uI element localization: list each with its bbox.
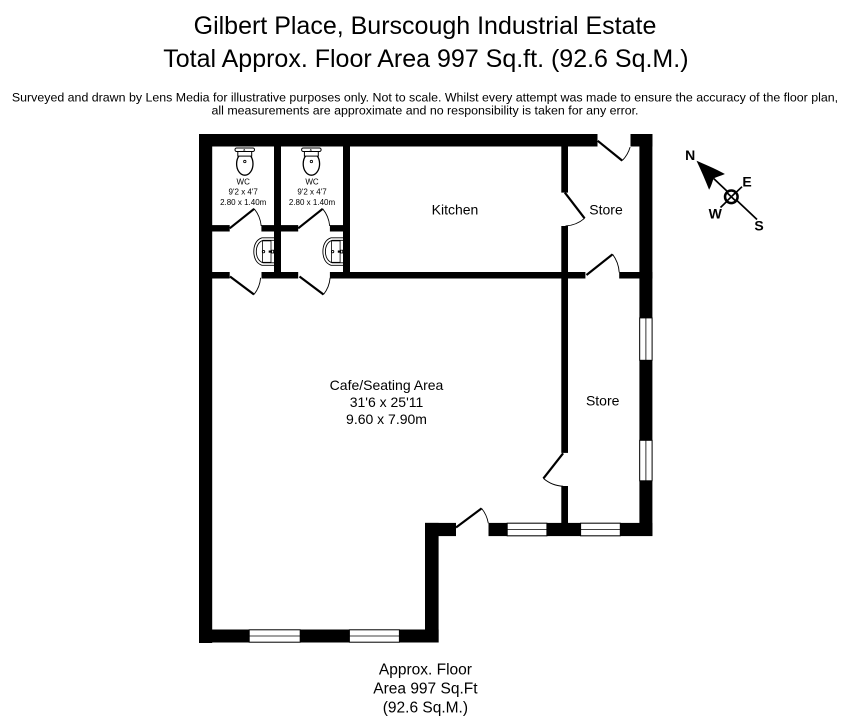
- svg-text:Kitchen: Kitchen: [432, 202, 479, 218]
- svg-text:2.80 x 1.40m: 2.80 x 1.40m: [289, 198, 336, 207]
- svg-text:E: E: [742, 174, 751, 190]
- svg-text:WC: WC: [237, 178, 251, 187]
- svg-text:Approx. Floor: Approx. Floor: [379, 662, 472, 679]
- svg-text:9'2 x 4'7: 9'2 x 4'7: [297, 188, 327, 197]
- svg-text:Gilbert Place, Burscough Indus: Gilbert Place, Burscough Industrial Esta…: [194, 12, 657, 40]
- svg-text:Cafe/Seating Area: Cafe/Seating Area: [330, 377, 444, 393]
- svg-text:WC: WC: [305, 178, 319, 187]
- svg-text:31'6 x 25'11: 31'6 x 25'11: [350, 394, 424, 410]
- svg-text:all measurements are approxima: all measurements are approximate and no …: [212, 103, 639, 117]
- svg-text:Store: Store: [586, 392, 620, 408]
- svg-text:Area 997 Sq.Ft: Area 997 Sq.Ft: [373, 681, 478, 698]
- svg-text:S: S: [754, 217, 763, 233]
- svg-text:Total Approx. Floor Area 997 S: Total Approx. Floor Area 997 Sq.ft. (92.…: [163, 45, 688, 73]
- svg-text:W: W: [709, 205, 723, 221]
- svg-text:9.60 x 7.90m: 9.60 x 7.90m: [346, 411, 427, 427]
- svg-text:Store: Store: [589, 202, 623, 218]
- svg-text:2.80 x 1.40m: 2.80 x 1.40m: [220, 198, 267, 207]
- svg-text:N: N: [685, 147, 695, 163]
- svg-text:Surveyed and drawn by Lens Med: Surveyed and drawn by Lens Media for ill…: [12, 90, 838, 104]
- svg-text:(92.6 Sq.M.): (92.6 Sq.M.): [383, 699, 468, 716]
- svg-text:9'2 x 4'7: 9'2 x 4'7: [229, 188, 259, 197]
